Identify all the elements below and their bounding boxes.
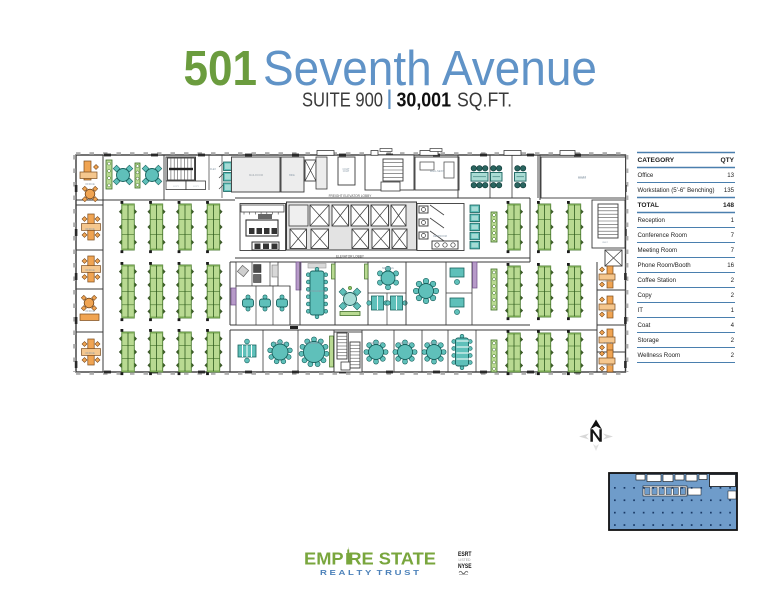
svg-text:30,001: 30,001 xyxy=(397,89,452,112)
svg-text:7: 7 xyxy=(731,247,735,254)
svg-text:Meeting Room: Meeting Room xyxy=(638,247,678,254)
svg-text:NYSE: NYSE xyxy=(458,563,472,570)
svg-text:13: 13 xyxy=(727,172,734,179)
svg-text:IT: IT xyxy=(638,307,644,314)
svg-text:Storage: Storage xyxy=(638,337,660,344)
svg-text:Coat: Coat xyxy=(638,322,651,329)
svg-text:7: 7 xyxy=(731,232,735,239)
svg-text:OFFICE: OFFICE xyxy=(603,279,613,283)
svg-text:VEST: VEST xyxy=(602,242,608,244)
svg-text:BIKE: BIKE xyxy=(289,174,295,177)
svg-text:FLEX: FLEX xyxy=(210,168,216,171)
svg-text:OFFICE: OFFICE xyxy=(603,363,613,367)
svg-text:WELLNESS: WELLNESS xyxy=(430,169,444,173)
svg-text:2: 2 xyxy=(731,337,735,344)
svg-text:LISTED: LISTED xyxy=(459,558,471,562)
svg-text:OFFICE: OFFICE xyxy=(85,182,95,186)
svg-text:16: 16 xyxy=(727,262,734,269)
svg-text:Office: Office xyxy=(638,172,654,179)
svg-text:MEETING: MEETING xyxy=(399,341,411,345)
svg-text:1: 1 xyxy=(731,307,735,314)
svg-text:SQ.FT.: SQ.FT. xyxy=(457,89,512,112)
svg-text:148: 148 xyxy=(723,202,734,209)
svg-text:Phone Room/Booth: Phone Room/Booth xyxy=(638,262,691,269)
svg-text:EMP RE STATE: EMP RE STATE xyxy=(304,549,436,569)
svg-text:2: 2 xyxy=(731,352,735,359)
svg-text:Copy: Copy xyxy=(638,292,653,299)
svg-text:2: 2 xyxy=(731,292,735,299)
svg-text:CONFERENCE: CONFERENCE xyxy=(308,289,326,293)
svg-text:MEETING: MEETING xyxy=(370,341,382,345)
svg-text:CONFERENCE: CONFERENCE xyxy=(305,341,323,345)
svg-text:Reception: Reception xyxy=(638,217,665,224)
svg-text:MAILROOM: MAILROOM xyxy=(249,173,263,177)
svg-text:MEETING: MEETING xyxy=(274,341,286,345)
svg-text:OFFICE: OFFICE xyxy=(603,341,613,345)
svg-text:501: 501 xyxy=(184,42,258,96)
svg-text:OFFICE: OFFICE xyxy=(85,309,95,313)
svg-text:QTY: QTY xyxy=(720,157,734,164)
svg-text:MEETING: MEETING xyxy=(382,266,394,270)
svg-text:CATEGORY: CATEGORY xyxy=(638,157,675,164)
svg-text:COAT: COAT xyxy=(342,167,349,171)
svg-text:OFFICE: OFFICE xyxy=(85,268,95,272)
svg-text:COAT: COAT xyxy=(578,175,586,179)
svg-text:RESTROOM: RESTROOM xyxy=(433,235,447,238)
svg-text:FREIGHT ELEVATOR LOBBY: FREIGHT ELEVATOR LOBBY xyxy=(329,194,373,198)
svg-text:OFFICE: OFFICE xyxy=(85,227,95,231)
svg-text:COPY: COPY xyxy=(193,186,200,188)
svg-text:Conference Room: Conference Room xyxy=(638,232,687,239)
svg-text:Wellness Room: Wellness Room xyxy=(638,352,681,359)
svg-text:R E A L T Y T R U S T: R E A L T Y T R U S T xyxy=(320,568,420,577)
svg-text:1: 1 xyxy=(731,217,735,224)
svg-text:Workstation (5'-6" Benching): Workstation (5'-6" Benching) xyxy=(638,187,715,194)
svg-text:135: 135 xyxy=(724,187,735,194)
svg-text:OFFICE: OFFICE xyxy=(85,351,95,355)
svg-text:OFFICE: OFFICE xyxy=(603,309,613,313)
svg-text:4: 4 xyxy=(731,322,735,329)
svg-text:COPY: COPY xyxy=(173,186,180,188)
svg-text:Coffee Station: Coffee Station xyxy=(638,277,677,284)
svg-text:ELEVATOR LOBBY: ELEVATOR LOBBY xyxy=(336,255,365,259)
svg-text:MEETING: MEETING xyxy=(428,341,440,345)
svg-text:2: 2 xyxy=(731,277,735,284)
svg-text:TOTAL: TOTAL xyxy=(638,202,659,209)
svg-text:SUITE 900: SUITE 900 xyxy=(302,89,383,112)
